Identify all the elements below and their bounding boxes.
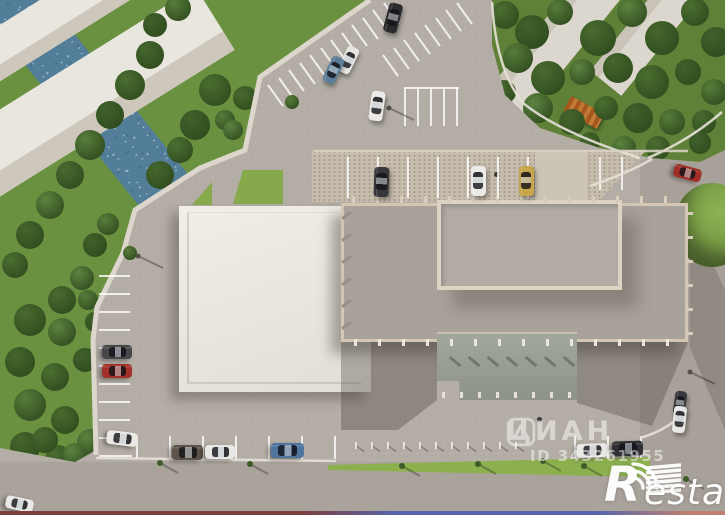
car-windshield [278,445,297,456]
car [205,445,235,459]
car [519,166,534,196]
car-windshield [113,432,132,444]
car-windshield [473,172,484,189]
car [102,364,132,378]
bush-icon [285,95,299,109]
car-windshield [678,167,696,180]
car-windshield [371,96,383,115]
car-windshield [178,447,196,458]
car-windshield [212,447,229,457]
car-windshield [386,8,400,27]
site-plan-render: ЦИАН ID 343261955 R estate [0,0,725,515]
car-windshield [109,347,126,357]
car [672,163,702,183]
bush-icon [123,246,137,260]
car [373,167,389,198]
car-windshield [109,366,126,376]
restate-logo: R estate [604,463,725,515]
image-bottom-edge [0,511,725,515]
car [271,443,304,458]
car [471,166,486,196]
car-windshield [375,173,386,191]
car-windshield [325,60,340,79]
car [106,429,138,447]
cian-watermark-text: ЦИАН [506,416,613,447]
car-windshield [10,498,28,510]
car [172,445,203,460]
car [368,90,386,122]
restate-logo-text: estate [644,472,725,513]
car [382,2,403,35]
car-windshield [521,172,532,189]
car [102,345,132,359]
